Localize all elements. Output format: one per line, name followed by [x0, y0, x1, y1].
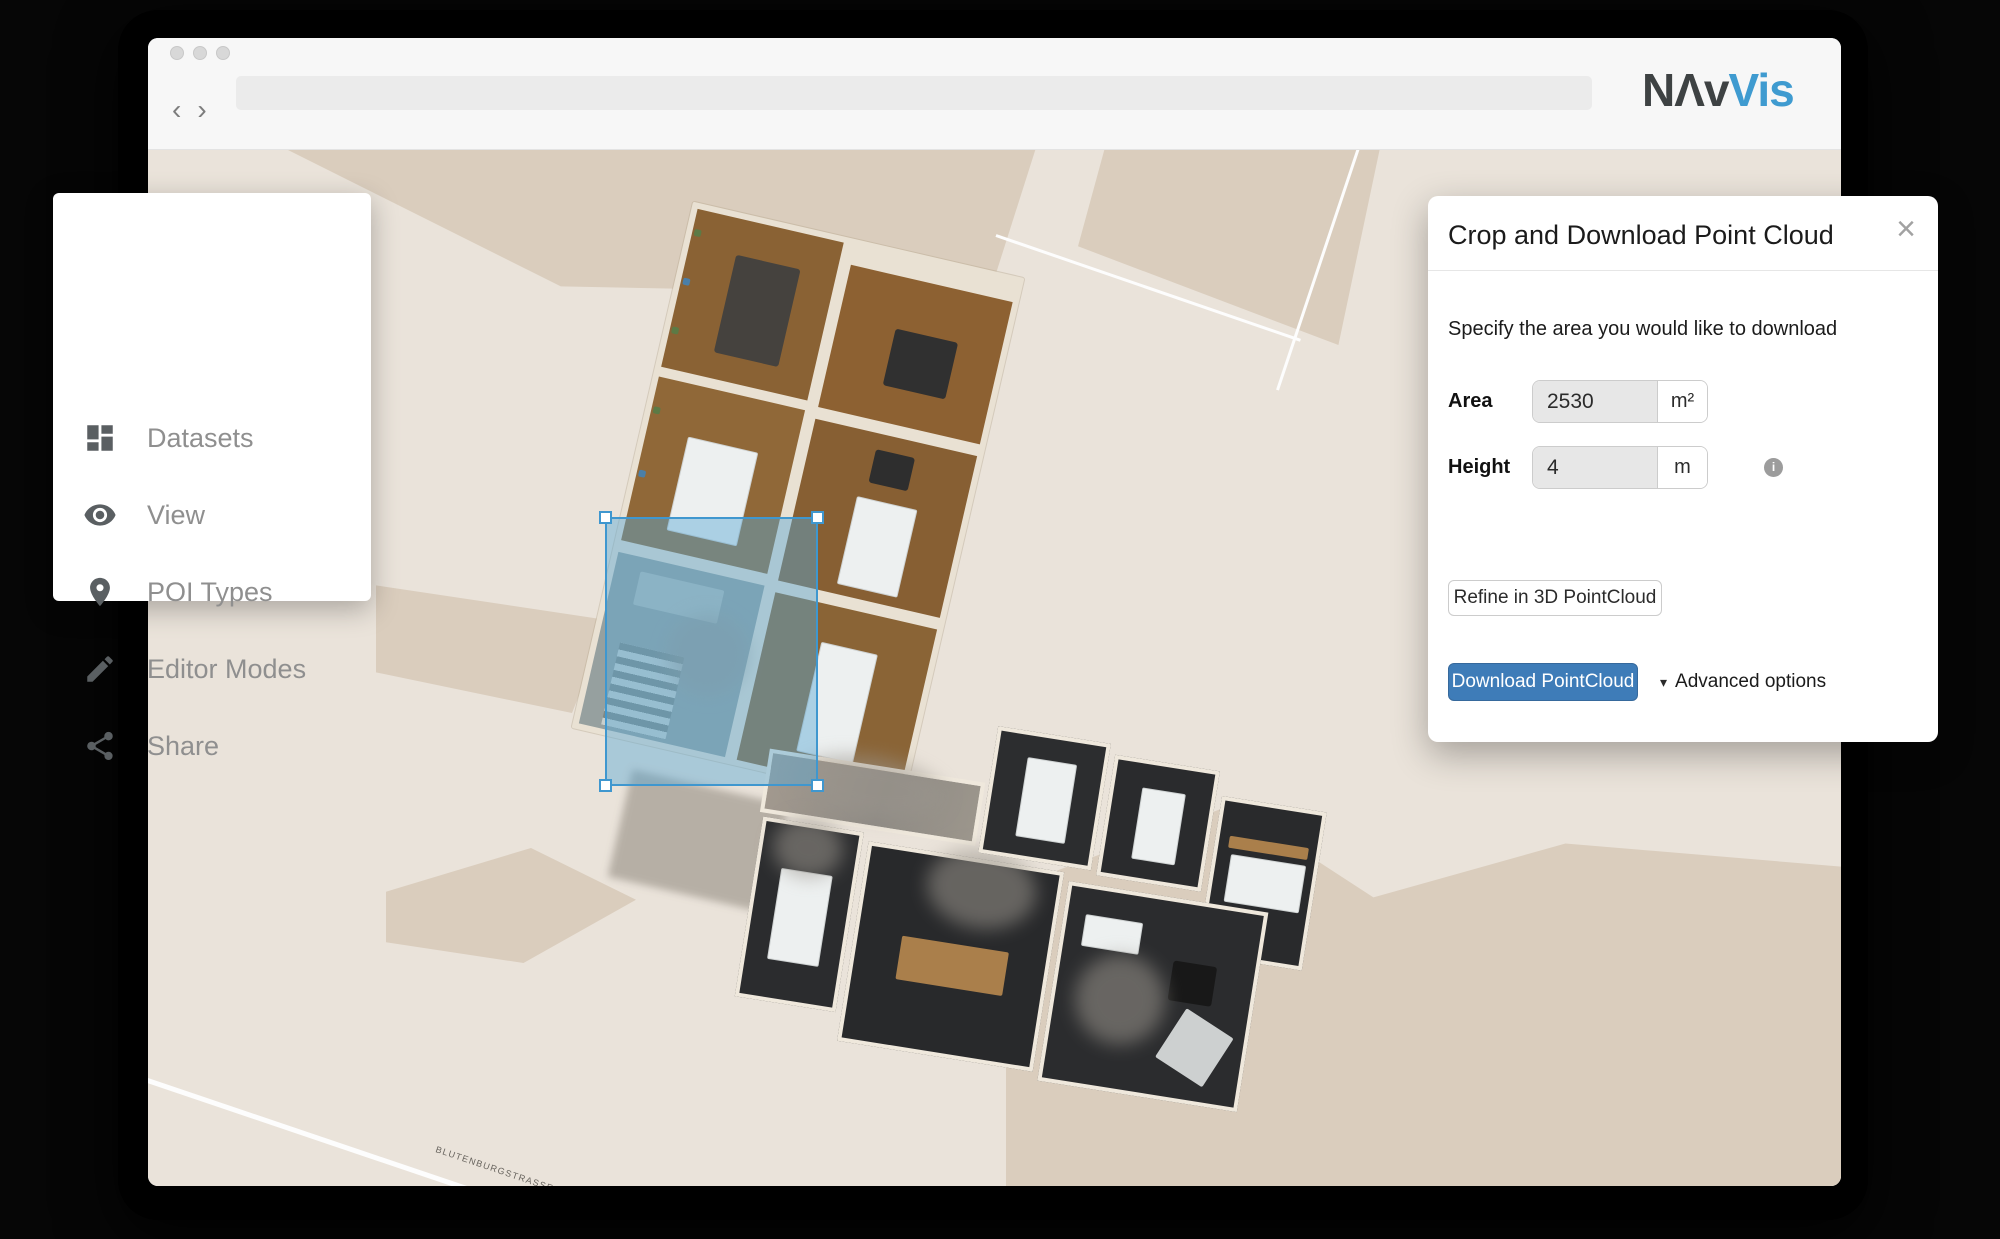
sidebar-item-label: View [147, 500, 205, 531]
resize-handle-ne[interactable] [811, 511, 824, 524]
dialog-title: Crop and Download Point Cloud [1448, 220, 1834, 251]
area-value-input[interactable] [1533, 381, 1657, 422]
building-room [978, 726, 1111, 870]
height-label: Height [1448, 456, 1532, 479]
window-control-dot[interactable] [216, 46, 230, 60]
building-room [661, 209, 844, 401]
plant [693, 229, 701, 237]
window-control-dot[interactable] [170, 46, 184, 60]
area-field-row: Area m² [1448, 380, 1708, 423]
sidebar-item-poi-types[interactable]: POI Types [53, 569, 371, 615]
crop-selection-rectangle[interactable] [605, 517, 818, 786]
table [1015, 757, 1077, 844]
download-pointcloud-button[interactable]: Download PointCloud [1448, 663, 1638, 701]
browser-chrome: ‹ › NΛvVis [148, 38, 1841, 150]
navvis-logo-blue: Vis [1728, 64, 1793, 116]
map-pin-icon [83, 575, 117, 609]
table [1224, 854, 1307, 913]
sidebar-menu: Datasets View POI Types Editor Modes Sha… [53, 193, 371, 601]
wooden-table [895, 936, 1009, 996]
page-background: ‹ › NΛvVis BLUTENBURGSTRASSE [0, 0, 2000, 1239]
building-room [1037, 881, 1268, 1112]
dashboard-grid-icon [83, 421, 117, 455]
sidebar-item-share[interactable]: Share [53, 723, 371, 769]
area-input-group: m² [1532, 380, 1708, 423]
sidebar-item-editor-modes[interactable]: Editor Modes [53, 646, 371, 692]
sidebar-item-datasets[interactable]: Datasets [53, 415, 371, 461]
refine-in-3d-button[interactable]: Refine in 3D PointCloud [1448, 580, 1662, 616]
crop-download-dialog: Crop and Download Point Cloud × Specify … [1428, 196, 1938, 742]
city-block [386, 848, 636, 963]
table [714, 255, 801, 367]
window-controls [170, 46, 230, 60]
sidebar-item-label: Editor Modes [147, 654, 306, 685]
resize-handle-se[interactable] [811, 779, 824, 792]
address-bar[interactable] [236, 76, 1592, 110]
pencil-icon [83, 652, 117, 686]
advanced-options-toggle[interactable]: ▾ Advanced options [1660, 671, 1826, 693]
navvis-logo-dark: NΛv [1642, 64, 1728, 116]
advanced-options-label: Advanced options [1675, 671, 1826, 693]
building-room [837, 841, 1064, 1071]
height-unit-label: m [1657, 447, 1707, 488]
table [1081, 914, 1143, 955]
back-button[interactable]: ‹ [172, 92, 181, 128]
sidebar-item-label: Datasets [147, 423, 254, 454]
info-icon[interactable]: i [1764, 458, 1783, 477]
share-icon [83, 729, 117, 763]
building-room [1096, 755, 1220, 892]
table [1131, 787, 1186, 865]
navvis-logo: NΛvVis [1642, 64, 1794, 116]
building-room [818, 265, 1013, 445]
sidebar-item-label: Share [147, 731, 219, 762]
height-input-group: m [1532, 446, 1708, 489]
table [767, 868, 833, 967]
table [883, 329, 958, 400]
table [837, 496, 918, 598]
sidebar-item-view[interactable]: View [53, 492, 371, 538]
close-icon[interactable]: × [1896, 212, 1916, 246]
dialog-subtitle: Specify the area you would like to downl… [1448, 318, 1837, 341]
plant [671, 326, 679, 334]
table [868, 449, 915, 491]
resize-handle-sw[interactable] [599, 779, 612, 792]
plant [653, 406, 661, 414]
desk-cluster [1155, 1008, 1234, 1087]
forward-button[interactable]: › [197, 92, 206, 128]
dialog-divider [1428, 270, 1938, 271]
height-value-input[interactable] [1533, 447, 1657, 488]
street-label: BLUTENBURGSTRASSE [434, 1144, 555, 1186]
building-room [735, 816, 864, 1012]
chair [638, 469, 646, 477]
resize-handle-nw[interactable] [599, 511, 612, 524]
chair [682, 278, 690, 286]
browser-nav: ‹ › [172, 92, 207, 128]
sidebar-item-label: POI Types [147, 577, 273, 608]
area-unit-label: m² [1657, 381, 1707, 422]
pointcloud-noise [1068, 948, 1171, 1051]
equipment [1167, 960, 1217, 1006]
area-label: Area [1448, 390, 1532, 413]
eye-icon [83, 498, 117, 532]
window-control-dot[interactable] [193, 46, 207, 60]
height-field-row: Height m i [1448, 446, 1708, 489]
chevron-down-icon: ▾ [1660, 674, 1667, 691]
download-row: Download PointCloud ▾ Advanced options [1448, 663, 1826, 701]
